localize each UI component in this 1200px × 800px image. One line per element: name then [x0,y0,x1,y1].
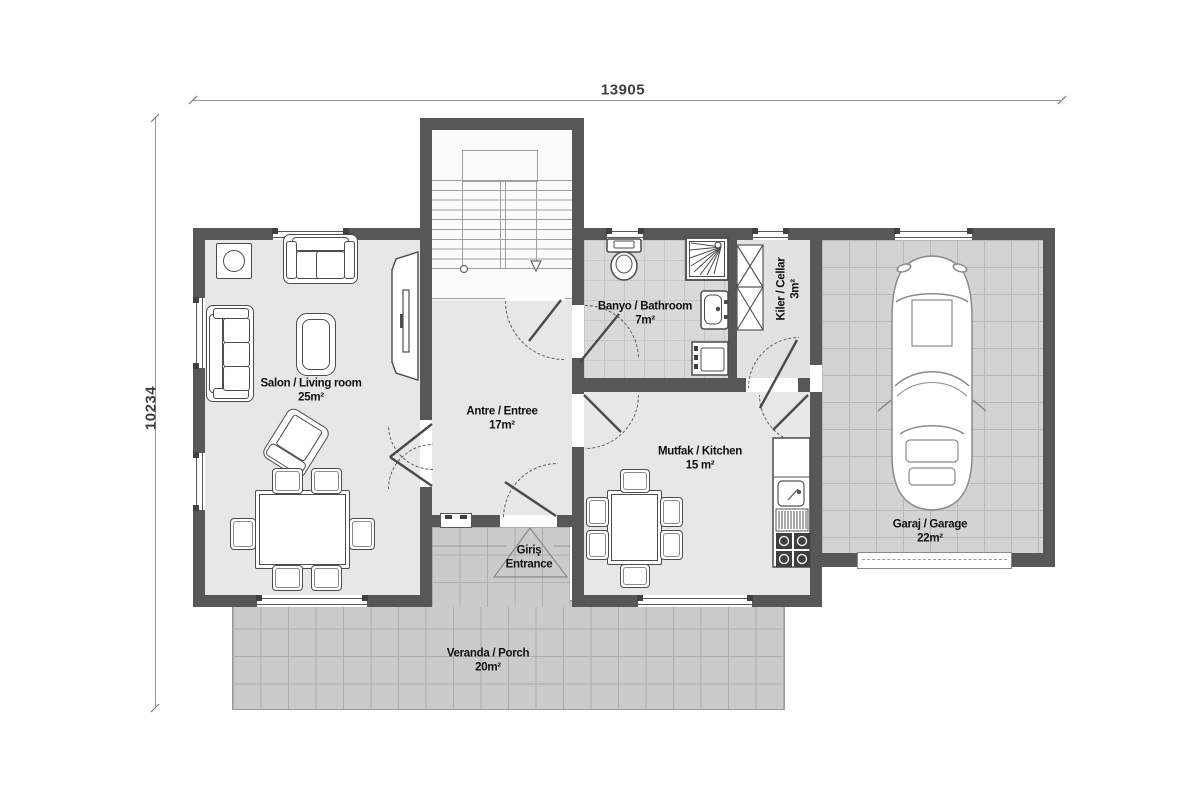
garage-window [895,228,972,240]
entrance-label: GirişEntrance [506,544,553,573]
dining-chair [311,468,342,494]
wall-garage-bottom-right [1010,553,1055,567]
garage-door [857,552,1012,569]
kitchen-table [607,490,662,565]
wall-bath-cellar [728,240,737,378]
kitchen-bottom-window [638,595,752,607]
wall-stair-top [420,118,584,130]
room-label-garage: Garaj / Garage22m² [893,518,967,547]
dining-chair [349,518,375,550]
stove-unit [216,243,252,279]
dining-table [255,490,350,569]
kitchen-chair [660,497,683,527]
cellar-window [753,228,788,240]
dining-chair [311,565,342,591]
kitchen-chair [620,469,650,493]
dimension-width: 13905 [601,82,645,99]
stair-center-stringer [500,180,506,269]
kitchen-chair [660,530,683,560]
dining-chair [230,518,256,550]
entrance-step [440,513,472,528]
sofa-three-seat [206,305,254,402]
dimension-line-top [193,100,1062,101]
kitchen-chair [586,530,609,560]
stair-rail-left [462,180,463,269]
room-label-living: Salon / Living room25m² [260,377,361,406]
sofa-two-seat [283,234,358,284]
floor-plan: 13905 10234 Salon / Living room25m² Antr… [0,0,1200,800]
living-left-window-2 [193,453,205,510]
wall-garage-right [1043,228,1055,567]
coffee-table [296,313,336,376]
room-label-antre: Antre / Entree17m² [466,405,537,434]
dining-chair [272,468,303,494]
room-label-porch: Veranda / Porch20m² [447,647,529,676]
dimension-height: 10234 [143,386,160,430]
stair-landing [462,150,538,182]
room-label-bathroom: Banyo / Bathroom7m² [598,300,692,329]
dining-chair [272,565,303,591]
living-left-window-1 [193,298,205,368]
kitchen-chair [586,497,609,527]
bathroom-window [607,228,643,240]
kitchen-chair [620,564,650,588]
cellar-garage-door-gap [810,365,822,392]
bathroom-door-gap [572,305,584,358]
garage-floor [822,240,1043,553]
wall-stair-left [420,118,432,300]
stairhall-door-gap [505,296,565,301]
stair-rail-right [536,180,537,269]
wall-center-vertical [572,118,584,607]
wall-kitchen-garage [810,228,822,607]
wall-left [193,228,205,607]
kitchen-door-gap [572,394,584,447]
living-bottom-window [257,595,367,607]
room-label-kitchen: Mutfak / Kitchen15 m² [658,445,742,474]
room-label-cellar: Kiler / Cellar3m² [775,258,804,321]
wall-garage-bottom-left [810,553,857,567]
